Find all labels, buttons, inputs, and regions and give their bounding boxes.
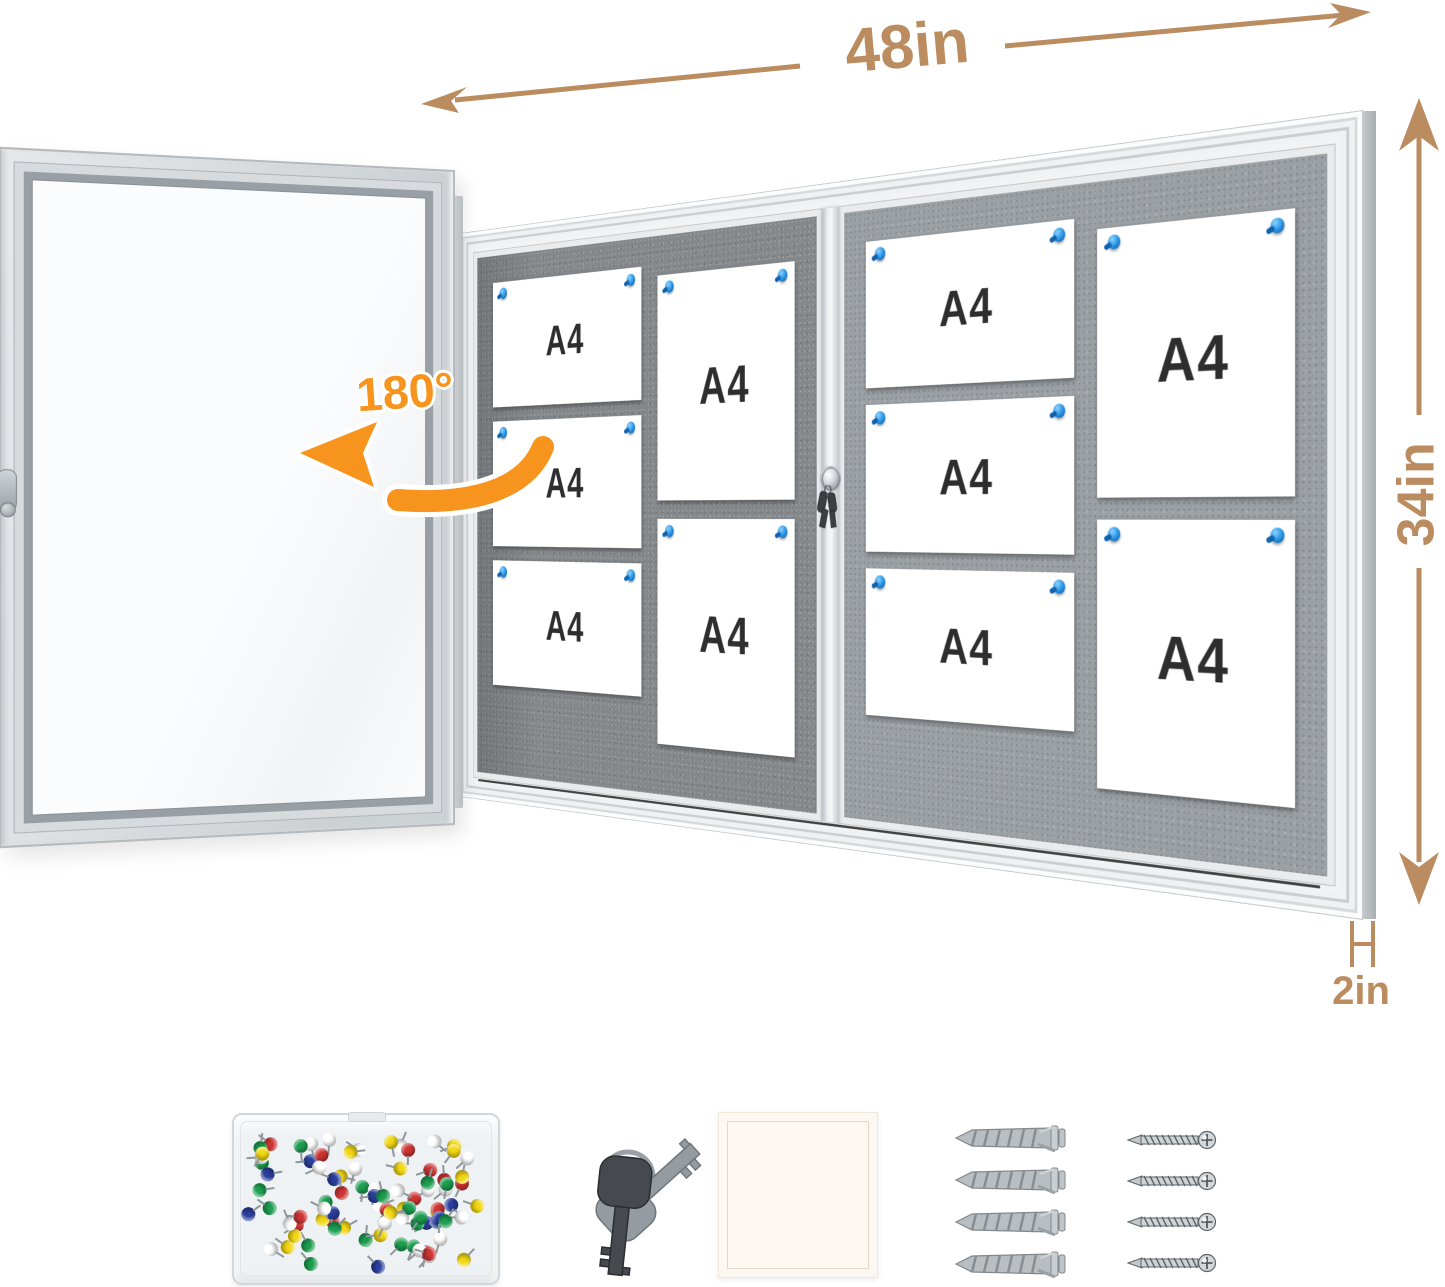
push-pin-icon [251, 1181, 276, 1198]
screw-icon [1126, 1171, 1221, 1191]
wall-anchor-icon [952, 1124, 1072, 1152]
push-pin-icon [383, 1205, 406, 1219]
push-pin-icon [872, 575, 886, 592]
a4-sheet-landscape: A4 [493, 267, 642, 408]
push-pin-icon [284, 1209, 308, 1225]
door-latch[interactable] [0, 470, 17, 513]
sheet-label: A4 [939, 447, 993, 506]
push-pin-icon [343, 1144, 368, 1161]
a4-sheet-portrait: A4 [1097, 208, 1295, 498]
sliding-panel-left[interactable]: A4A4A4 A4A4 [474, 209, 822, 821]
wall-anchor-icon [952, 1250, 1072, 1278]
sheet-label: A4 [939, 617, 993, 678]
screws-group [1126, 1130, 1221, 1273]
sheet-label: A4 [699, 353, 749, 415]
screw-icon [1126, 1253, 1221, 1273]
push-pin-icon [663, 525, 675, 540]
push-pin-icon [1267, 217, 1286, 238]
push-pin-icon [295, 1247, 321, 1274]
push-pin-icon [1105, 234, 1122, 254]
push-pin-icon [625, 421, 637, 437]
push-pin-box [232, 1113, 500, 1285]
wall-anchors-group [952, 1124, 1072, 1278]
sheet-label: A4 [699, 604, 749, 666]
push-pin-icon [775, 268, 788, 285]
a4-sheet-portrait: A4 [1097, 520, 1295, 809]
push-pin-icon [775, 525, 788, 541]
push-pin-icon [260, 1164, 285, 1182]
felt-board-left: A4A4A4 A4A4 [477, 216, 816, 813]
push-pin-icon [400, 1143, 414, 1166]
screw-icon [1126, 1212, 1221, 1232]
sheet-label: A4 [546, 458, 585, 508]
door-glass [24, 171, 433, 823]
push-pin-icon [663, 280, 675, 297]
a4-sheet-landscape: A4 [493, 415, 642, 548]
push-pin-icon [625, 273, 637, 289]
a4-sheet-portrait: A4 [658, 519, 795, 758]
push-pin-icon [362, 1251, 388, 1277]
width-arrow-right-icon [1005, 3, 1371, 46]
center-mullion [822, 207, 839, 823]
board-side-face [1362, 111, 1376, 919]
notice-board: A4A4A4 A4A4 [460, 110, 1363, 920]
hanging-keys-icon [814, 485, 843, 536]
width-dimension-label: 48in [815, 6, 1000, 87]
push-pin-icon [872, 411, 886, 428]
door-frame [0, 147, 455, 849]
board-frame: A4A4A4 A4A4 [460, 110, 1363, 920]
push-pin-icon [498, 287, 508, 302]
a4-sheet-landscape: A4 [866, 396, 1075, 555]
a4-sheet-portrait: A4 [658, 261, 795, 500]
wall-anchor-icon [952, 1166, 1072, 1194]
push-pin-icon [1105, 527, 1122, 545]
push-pin-icon [872, 246, 886, 264]
push-pin-icon [454, 1243, 480, 1269]
push-pin-icon [1267, 528, 1286, 548]
a4-sheet-landscape: A4 [493, 560, 642, 696]
sheet-label: A4 [546, 601, 585, 652]
a4-sheet-landscape: A4 [866, 219, 1075, 389]
push-pin-icon [625, 569, 637, 584]
sheet-label: A4 [1157, 320, 1230, 396]
wall-anchor-icon [952, 1208, 1072, 1236]
push-pin-icon [1051, 227, 1067, 247]
depth-dimension-label: 2in [1311, 970, 1411, 1012]
height-dimension-label: 34in [1390, 409, 1445, 579]
open-door[interactable] [0, 147, 455, 849]
product-illustration: 48in 34in 2in 180° A4A4A4 A4A4 [0, 0, 1445, 1287]
push-pin-icon [1051, 403, 1067, 422]
push-pin-icon [498, 427, 508, 442]
width-arrow-left-icon [421, 66, 800, 113]
push-pin-icon [498, 566, 508, 580]
depth-bracket-icon [1352, 921, 1373, 967]
a4-sheet-landscape: A4 [866, 568, 1075, 731]
screw-icon [1126, 1130, 1221, 1150]
push-pin-icon [1051, 579, 1067, 597]
sliding-panel-right[interactable]: A4A4A4 A4A4 [839, 145, 1334, 886]
felt-board-right: A4A4A4 A4A4 [844, 153, 1327, 876]
sheet-label: A4 [546, 313, 585, 365]
lock[interactable] [820, 464, 841, 492]
felt-pad [718, 1112, 878, 1278]
keys-icon [558, 1085, 738, 1287]
sheet-label: A4 [1157, 622, 1230, 697]
sheet-label: A4 [939, 276, 993, 338]
